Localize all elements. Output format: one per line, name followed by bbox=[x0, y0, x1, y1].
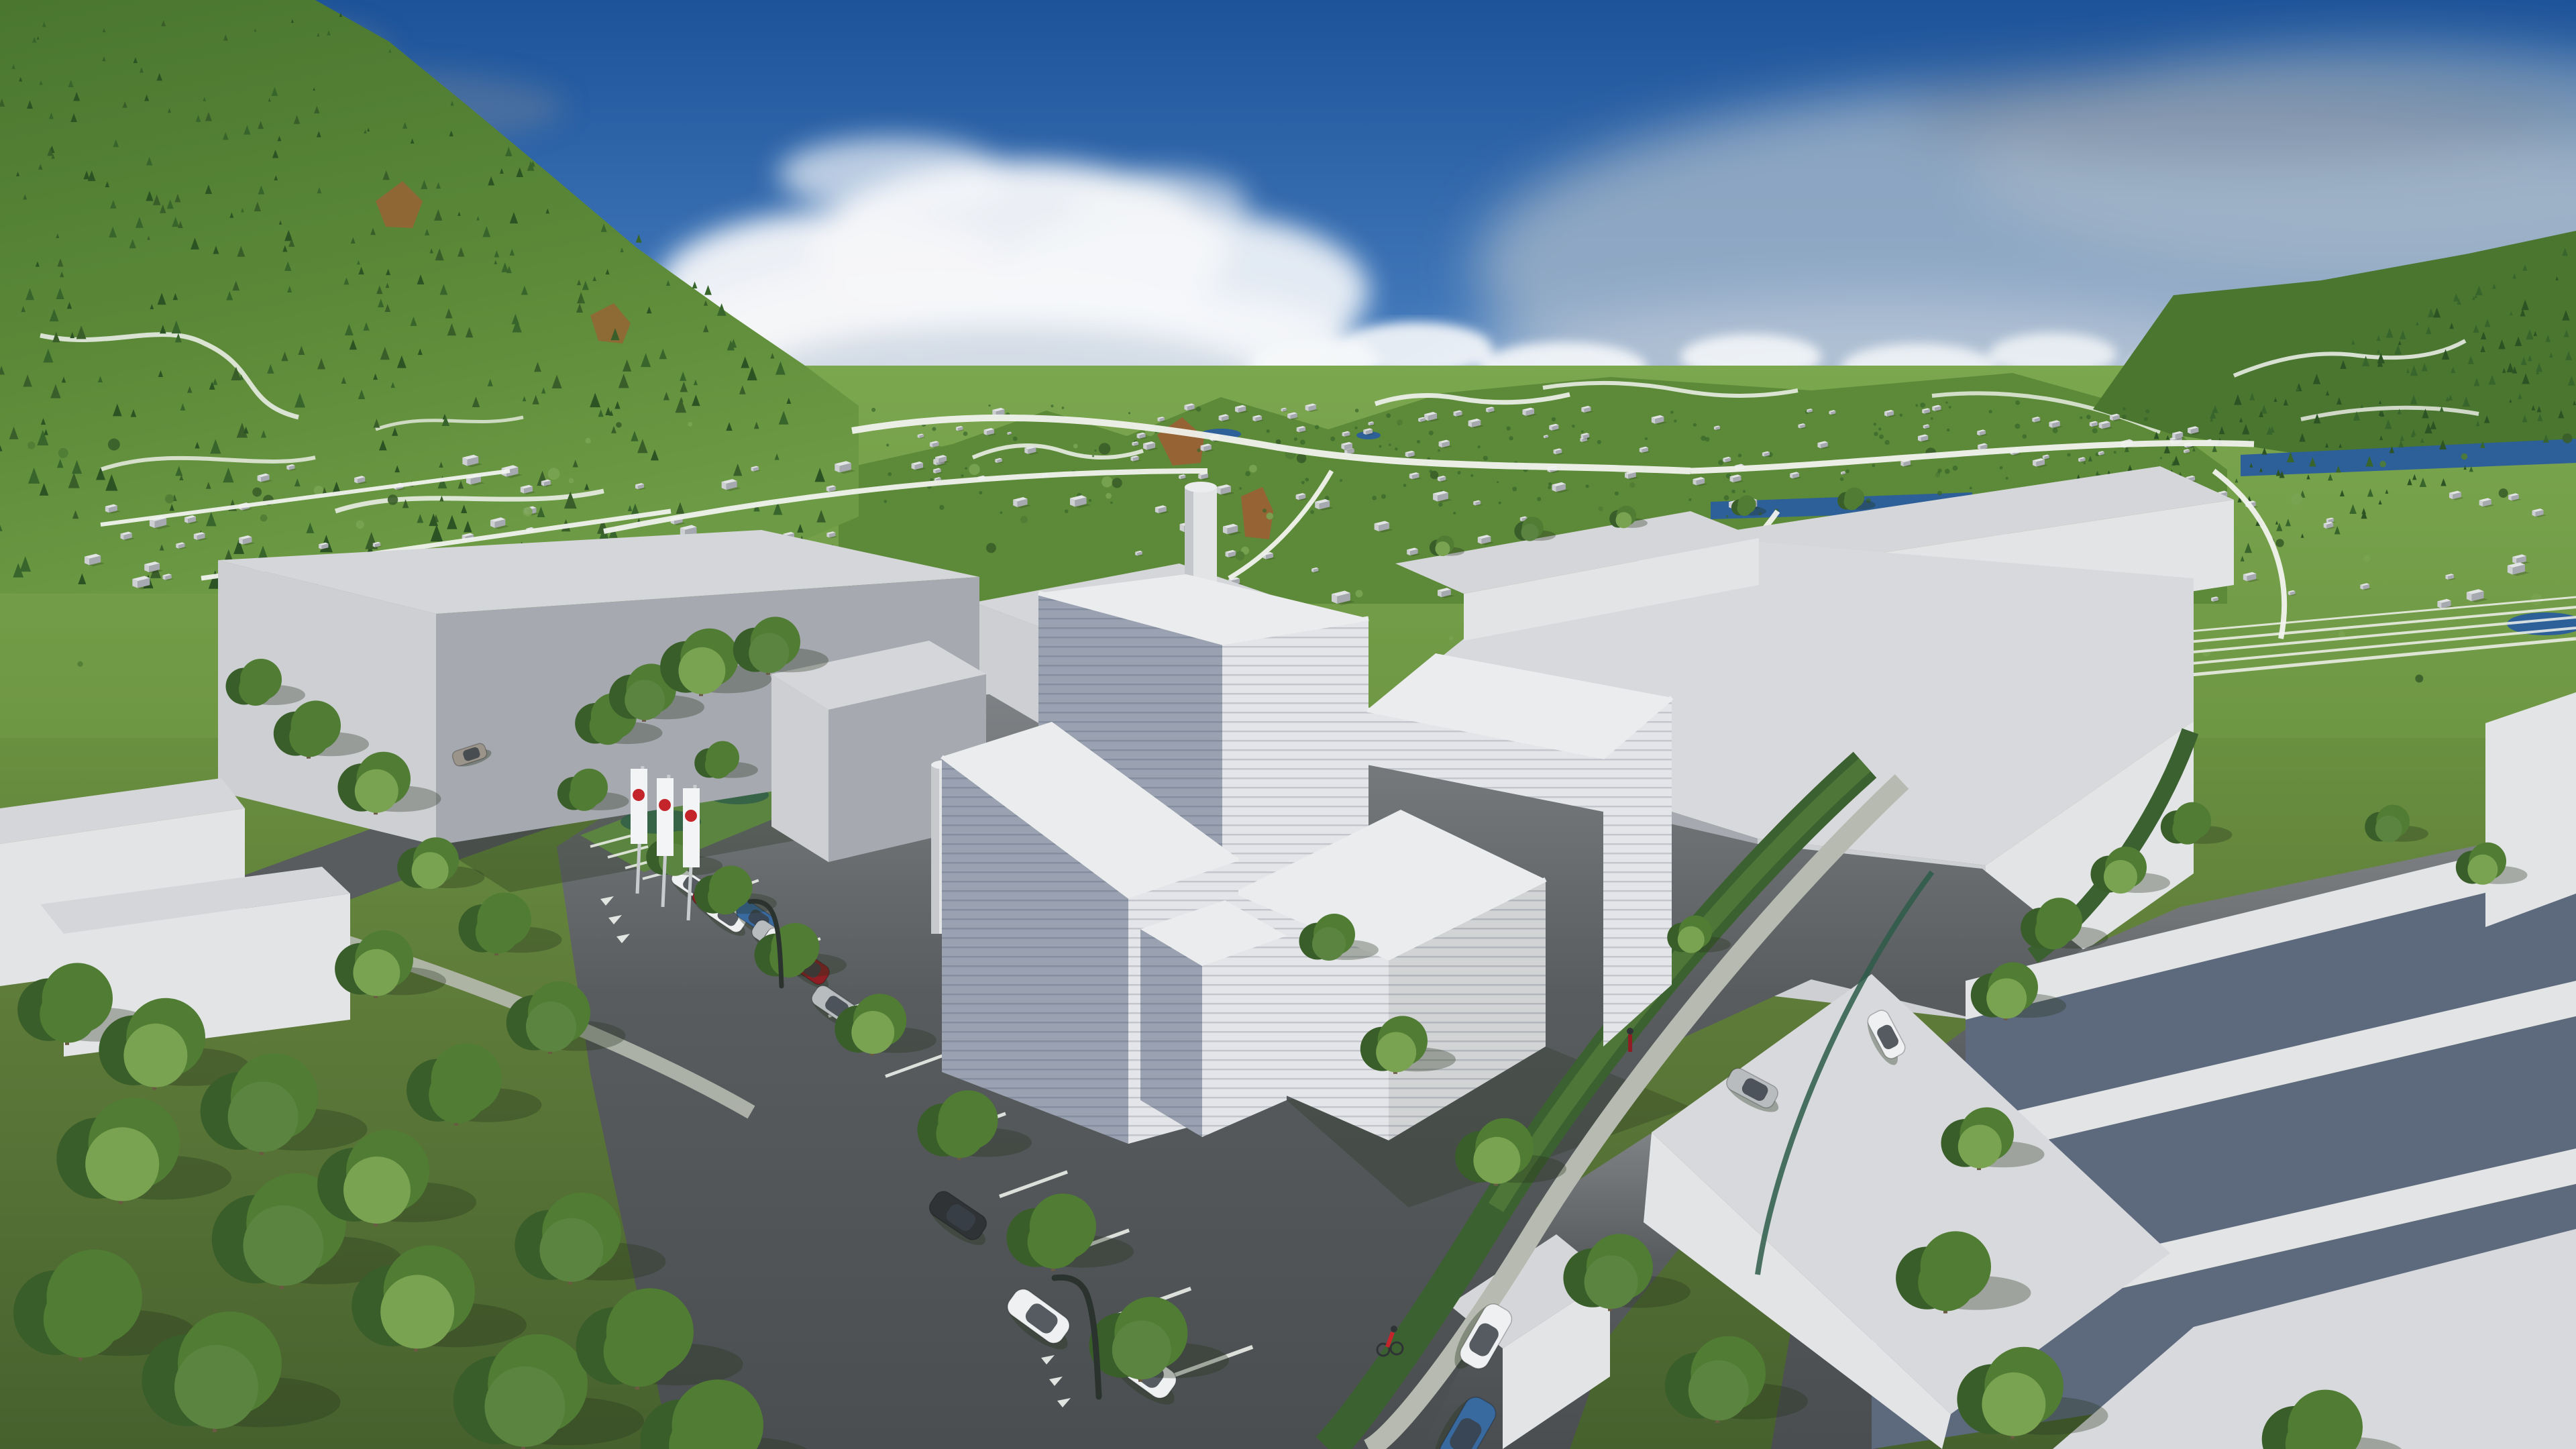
valley-tree bbox=[165, 494, 174, 504]
valley-tree bbox=[569, 478, 574, 484]
valley-tree bbox=[1449, 636, 1453, 640]
ridge-tree bbox=[1379, 445, 1381, 447]
ridge-tree bbox=[1945, 469, 1950, 474]
ridge-tree bbox=[883, 500, 887, 503]
right-edge-building bbox=[2485, 692, 2576, 927]
ridge-tree bbox=[1483, 455, 1488, 460]
ridge-tree bbox=[2080, 417, 2082, 419]
ridge-tree bbox=[1403, 484, 1407, 487]
tree-foliage bbox=[1615, 512, 1631, 528]
ridge-tree bbox=[1386, 413, 1391, 418]
tree-foliage bbox=[625, 680, 665, 720]
ridge-tree bbox=[1900, 414, 1903, 417]
ridge-tree bbox=[1013, 437, 1018, 441]
tree-foliage bbox=[1028, 1215, 1081, 1269]
ridge-tree bbox=[1089, 499, 1091, 502]
ridge-tree bbox=[1693, 423, 1697, 427]
ridge-tree bbox=[1970, 487, 1972, 490]
ridge-tree bbox=[1453, 512, 1456, 515]
tree-foliage bbox=[936, 1110, 984, 1158]
tree-foliage bbox=[239, 672, 272, 706]
valley-tree bbox=[1073, 444, 1078, 449]
valley-tree bbox=[1599, 506, 1603, 511]
valley-tree bbox=[1397, 419, 1403, 425]
tree-foliage bbox=[40, 985, 97, 1042]
tree-foliage bbox=[2035, 912, 2072, 949]
valley-tree bbox=[688, 422, 692, 427]
ridge-tree bbox=[1537, 497, 1541, 501]
valley-tree bbox=[1236, 551, 1245, 560]
ridge-tree bbox=[1417, 440, 1420, 443]
ridge-tree bbox=[1548, 486, 1551, 489]
tree-foliage bbox=[2172, 814, 2202, 845]
flag-logo bbox=[633, 789, 645, 801]
ridge-tree bbox=[1263, 508, 1267, 513]
valley-tree bbox=[969, 464, 980, 476]
ridge-tree bbox=[1931, 417, 1933, 420]
ridge-tree bbox=[888, 472, 892, 476]
ridge-tree bbox=[1355, 409, 1359, 413]
ridge-tree bbox=[1915, 404, 1918, 407]
ridge-tree bbox=[963, 431, 968, 436]
ridge-tree bbox=[1878, 427, 1881, 430]
ridge-tree bbox=[1310, 510, 1314, 514]
valley-tree bbox=[2364, 555, 2371, 562]
tree-foliage bbox=[851, 1011, 894, 1054]
valley-tree bbox=[2275, 539, 2284, 547]
valley-tree bbox=[1935, 472, 1940, 477]
ridge-tree bbox=[2123, 407, 2126, 411]
ridge-tree bbox=[1731, 490, 1735, 494]
valley-tree bbox=[1267, 513, 1273, 519]
ridge-tree bbox=[1688, 498, 1691, 501]
tree-foliage bbox=[476, 910, 519, 954]
ridge-tree bbox=[1701, 435, 1706, 441]
ridge-tree bbox=[1110, 501, 1113, 504]
valley-tree bbox=[252, 488, 262, 497]
ridge-tree bbox=[1872, 464, 1875, 468]
ridge-tree bbox=[1315, 425, 1319, 429]
valley-tree bbox=[2415, 675, 2423, 683]
valley-tree bbox=[2499, 488, 2508, 498]
ridge-tree bbox=[1395, 447, 1397, 450]
tree-foliage bbox=[1678, 926, 1705, 953]
valley-tree bbox=[2563, 433, 2573, 443]
tree-foliage bbox=[2375, 816, 2402, 843]
ridge-tree bbox=[1670, 411, 1674, 414]
ridge-tree bbox=[939, 505, 944, 510]
tree-foliage bbox=[1376, 1032, 1416, 1072]
tree-foliage bbox=[769, 938, 808, 977]
tree-foliage bbox=[705, 752, 732, 779]
ridge-tree bbox=[1718, 460, 1723, 466]
valley-tree bbox=[1430, 471, 1438, 479]
ridge-tree bbox=[2015, 400, 2020, 405]
tree-foliage bbox=[1312, 927, 1346, 961]
tree-foliage bbox=[85, 1127, 159, 1201]
ridge-tree bbox=[1507, 426, 1511, 430]
tree-foliage bbox=[174, 1345, 258, 1429]
valley-tree bbox=[986, 543, 996, 553]
ridge-tree bbox=[1743, 490, 1746, 492]
tree-foliage bbox=[355, 769, 398, 813]
ridge-tree bbox=[2000, 466, 2003, 470]
ridge-tree bbox=[1879, 435, 1884, 439]
tree-foliage bbox=[353, 949, 400, 996]
ridge-tree bbox=[1497, 481, 1499, 483]
ridge-tree bbox=[1615, 492, 1619, 496]
ridge-tree bbox=[2015, 423, 2020, 429]
ridge-tree bbox=[1884, 440, 1889, 445]
ridge-tree bbox=[1874, 432, 1878, 437]
ridge-tree bbox=[2084, 462, 2086, 465]
ridge-tree bbox=[871, 408, 875, 412]
valley-tree bbox=[260, 515, 268, 522]
tree-foliage bbox=[1473, 1137, 1520, 1184]
ridge-tree bbox=[2086, 415, 2091, 419]
tree-foliage bbox=[2467, 855, 2498, 885]
tree-foliage bbox=[1737, 501, 1752, 516]
ridge-tree bbox=[1340, 479, 1342, 482]
ridge-tree bbox=[2160, 457, 2162, 459]
ridge-tree bbox=[1937, 491, 1942, 496]
ridge-tree bbox=[1051, 405, 1053, 407]
ridge-tree bbox=[1509, 436, 1513, 440]
tree-foliage bbox=[1435, 541, 1450, 556]
ridge-tree bbox=[1372, 496, 1377, 500]
ridge-tree bbox=[1065, 509, 1069, 513]
ridge-tree bbox=[1197, 448, 1200, 451]
tree-foliage bbox=[569, 781, 599, 811]
tree-foliage bbox=[1521, 524, 1539, 541]
ridge-tree bbox=[1389, 443, 1391, 446]
valley-tree bbox=[356, 521, 364, 529]
ridge-tree bbox=[1062, 407, 1065, 409]
tree-foliage bbox=[526, 1002, 576, 1052]
tree-foliage bbox=[412, 852, 449, 889]
valley-tree bbox=[585, 438, 590, 443]
tree-foliage bbox=[243, 1205, 323, 1286]
ridge-tree bbox=[1300, 439, 1305, 445]
ridge-tree bbox=[961, 474, 963, 477]
tree-foliage bbox=[708, 879, 743, 914]
valley-tree bbox=[2461, 453, 2468, 460]
valley-tree bbox=[2379, 461, 2386, 468]
valley-tree bbox=[1106, 493, 1112, 499]
ridge-tree bbox=[1294, 437, 1297, 441]
valley-tree bbox=[616, 422, 622, 428]
tree-foliage bbox=[604, 1316, 674, 1387]
tree-foliage bbox=[1112, 1320, 1171, 1379]
ridge-tree bbox=[979, 491, 982, 494]
ridge-tree bbox=[1239, 487, 1242, 490]
tree-foliage bbox=[343, 1157, 411, 1224]
tree-foliage bbox=[380, 1275, 454, 1348]
valley-tree bbox=[1276, 439, 1281, 445]
ridge-tree bbox=[1726, 515, 1728, 517]
ridge-tree bbox=[1381, 494, 1386, 499]
ridge-tree bbox=[1499, 502, 1501, 504]
ridge-tree bbox=[1989, 410, 1992, 413]
rendered-scene bbox=[0, 0, 2576, 1449]
ridge-tree bbox=[886, 443, 889, 446]
valley-tree bbox=[1629, 482, 1635, 488]
tree-foliage bbox=[1982, 1373, 2045, 1436]
valley-tree bbox=[1112, 478, 1122, 488]
ridge-tree bbox=[1949, 406, 1951, 409]
ridge-tree bbox=[988, 405, 990, 407]
ridge-tree bbox=[1128, 412, 1130, 414]
tree-foliage bbox=[44, 1281, 121, 1358]
ridge-tree bbox=[1470, 474, 1473, 477]
ridge-tree bbox=[1572, 425, 1575, 428]
valley-tree bbox=[1020, 516, 1028, 523]
tree-foliage bbox=[1986, 978, 2027, 1018]
tree-foliage bbox=[123, 1024, 187, 1087]
ridge-tree bbox=[2114, 451, 2116, 453]
ridge-tree bbox=[1196, 407, 1201, 412]
ridge-tree bbox=[1645, 437, 1648, 440]
ridge-tree bbox=[1330, 437, 1335, 441]
ridge-tree bbox=[1478, 445, 1481, 448]
ridge-tree bbox=[965, 467, 967, 470]
tree-foliage bbox=[1585, 1255, 1638, 1309]
ridge-tree bbox=[1429, 431, 1434, 435]
valley-tree bbox=[1102, 476, 1113, 488]
ridge-tree bbox=[1953, 466, 1958, 471]
valley-tree bbox=[108, 439, 120, 451]
ridge-tree bbox=[2067, 453, 2070, 456]
ridge-tree bbox=[1438, 449, 1440, 452]
valley-tree bbox=[28, 441, 35, 449]
tree-foliage bbox=[1918, 1254, 1975, 1311]
valley-tree bbox=[77, 661, 83, 667]
tree-foliage bbox=[539, 1218, 603, 1282]
ridge-tree bbox=[932, 427, 936, 431]
ridge-tree bbox=[1245, 471, 1250, 476]
valley-tree bbox=[388, 494, 398, 504]
valley-tree bbox=[1099, 443, 1110, 454]
ridge-tree bbox=[2005, 477, 2008, 480]
valley-tree bbox=[1355, 590, 1362, 597]
valley-tree bbox=[2339, 631, 2345, 637]
ridge-tree bbox=[2144, 417, 2148, 421]
ridge-tree bbox=[1920, 402, 1925, 408]
valley-tree bbox=[548, 468, 560, 480]
ridge-tree bbox=[1585, 484, 1589, 488]
ridge-tree bbox=[1597, 440, 1601, 444]
valley-tree bbox=[523, 507, 533, 517]
ridge-tree bbox=[1301, 481, 1305, 484]
ridge-tree bbox=[1000, 511, 1003, 514]
ridge-tree bbox=[1724, 495, 1729, 500]
valley-tree bbox=[2291, 493, 2303, 505]
tree-foliage bbox=[1958, 1125, 2002, 1169]
ridge-tree bbox=[1094, 449, 1096, 451]
tree-foliage bbox=[678, 647, 725, 694]
tree-foliage bbox=[2104, 860, 2137, 894]
ridge-tree bbox=[1305, 478, 1309, 482]
ridge-tree bbox=[2092, 428, 2098, 433]
ridge-tree bbox=[1267, 429, 1270, 433]
tree-foliage bbox=[289, 716, 329, 757]
ridge-tree bbox=[1945, 401, 1947, 403]
ridge-tree bbox=[1548, 482, 1552, 486]
valley-tree bbox=[1249, 465, 1257, 473]
ridge-tree bbox=[1845, 470, 1849, 474]
tree-foliage bbox=[228, 1081, 299, 1152]
tree-foliage bbox=[749, 633, 789, 673]
ridge-tree bbox=[1512, 487, 1517, 492]
tree-foliage bbox=[1843, 494, 1860, 510]
ridge-tree bbox=[1738, 453, 1741, 457]
tree-foliage bbox=[1688, 1360, 1749, 1421]
tree-foliage bbox=[429, 1066, 486, 1123]
ridge-tree bbox=[1581, 431, 1584, 433]
ridge-tree bbox=[1552, 417, 1556, 421]
ridge-tree bbox=[1874, 423, 1877, 426]
ridge-tree bbox=[1457, 471, 1460, 474]
tree-foliage bbox=[484, 1366, 565, 1447]
ridge-tree bbox=[2145, 409, 2149, 413]
ridge-tree bbox=[2022, 434, 2027, 439]
ridge-tree bbox=[1947, 429, 1950, 432]
valley-tree bbox=[58, 448, 68, 458]
ridge-tree bbox=[2122, 415, 2127, 419]
valley-tree bbox=[1297, 453, 1307, 464]
ridge-tree bbox=[1438, 502, 1442, 506]
ridge-tree bbox=[1674, 419, 1676, 422]
ridge-tree bbox=[2053, 428, 2058, 433]
ridge-tree bbox=[1092, 455, 1094, 457]
ridge-tree bbox=[1355, 427, 1358, 429]
ridge-tree bbox=[1840, 477, 1844, 481]
